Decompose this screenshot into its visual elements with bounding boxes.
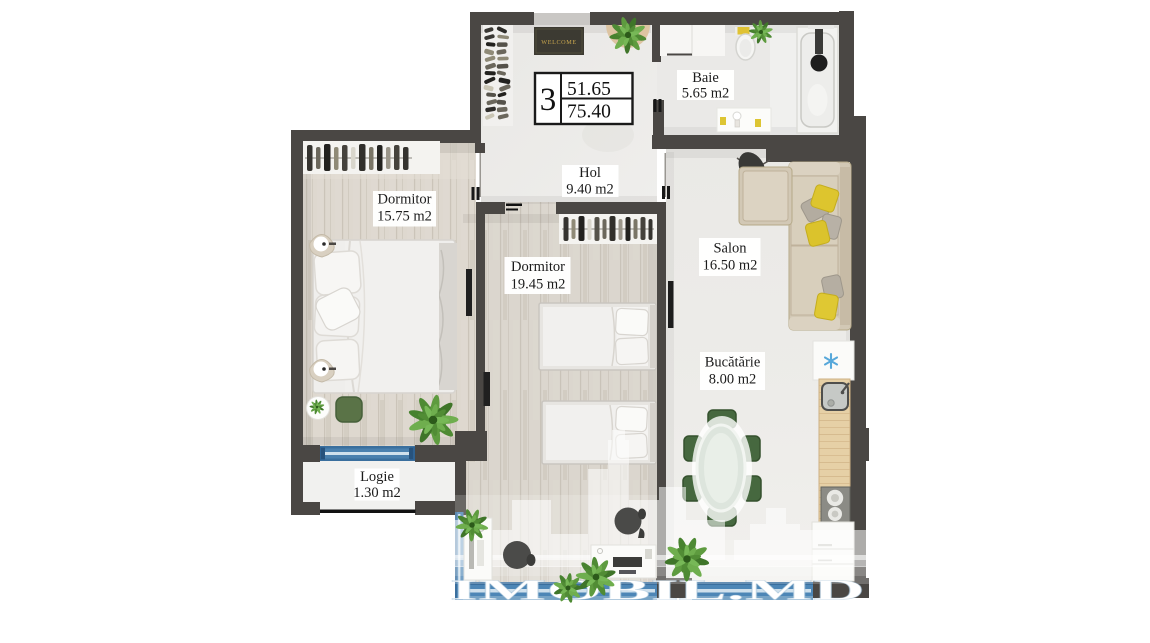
svg-text:19.45 m2: 19.45 m2 [511, 277, 566, 293]
svg-text:3: 3 [540, 82, 557, 118]
svg-text:1.30 m2: 1.30 m2 [353, 485, 401, 501]
svg-text:Dormitor: Dormitor [378, 192, 432, 208]
svg-text:Dormitor: Dormitor [511, 259, 565, 275]
svg-text:51.65: 51.65 [567, 79, 611, 100]
svg-text:8.00 m2: 8.00 m2 [709, 372, 757, 388]
svg-text:Salon: Salon [713, 241, 747, 257]
svg-text:Logie: Logie [360, 469, 394, 485]
svg-text:WELCOME: WELCOME [541, 39, 576, 46]
svg-text:9.40 m2: 9.40 m2 [566, 182, 614, 198]
svg-text:Baie: Baie [692, 70, 719, 86]
svg-text:Hol: Hol [579, 165, 601, 181]
svg-text:16.50 m2: 16.50 m2 [703, 258, 758, 274]
svg-text:5.65 m2: 5.65 m2 [682, 86, 730, 102]
svg-text:15.75 m2: 15.75 m2 [377, 209, 432, 225]
svg-text:Bucătărie: Bucătărie [705, 355, 761, 371]
svg-text:75.40: 75.40 [567, 102, 611, 123]
